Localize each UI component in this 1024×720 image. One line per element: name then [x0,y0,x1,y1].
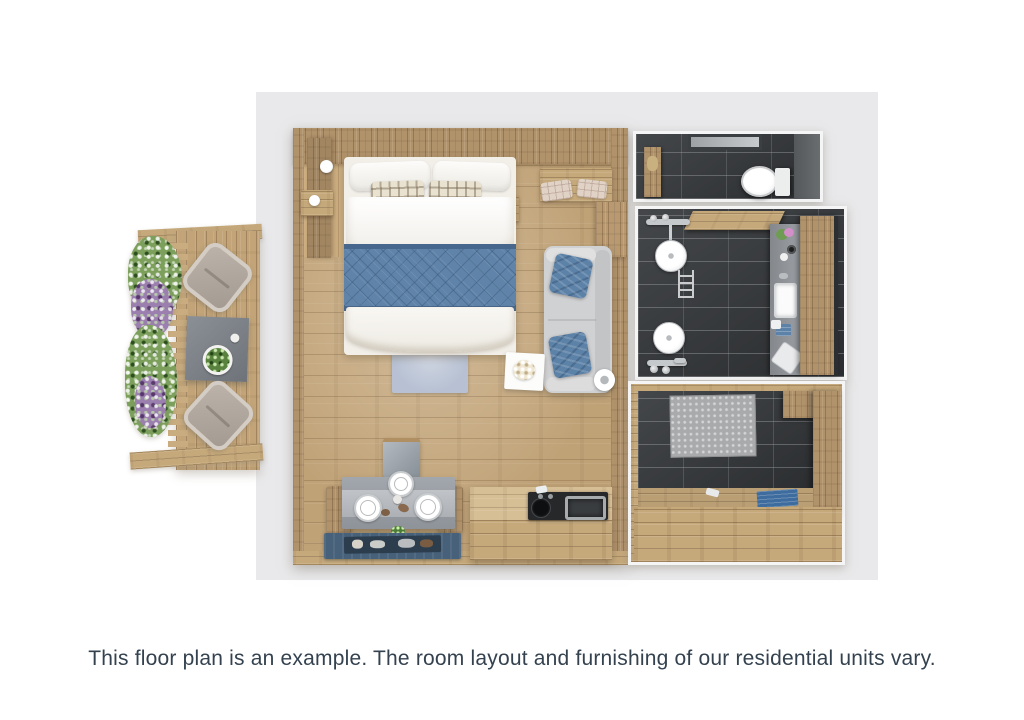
bed-blue-quilt [344,244,516,311]
sauna-interior [631,384,842,562]
balcony-table [185,316,249,382]
vanity-bowl [780,253,788,261]
pendant-lamp [320,160,333,173]
wc-shelf-decor [647,156,658,171]
vanity-counter [770,224,801,375]
bed-foot-sheet [346,307,514,352]
sofa-pillow-bottom [548,331,593,379]
vanity-bowl [787,245,796,254]
tray-item [370,540,385,548]
main-room-wall-right [611,128,628,565]
vanity-flowers [784,228,794,237]
balcony-table-cup [230,333,239,342]
faucet-knob [650,365,658,373]
shower-head-bottom [653,322,685,354]
floor-plan-page: This floor plan is an example. The room … [0,0,1024,720]
nightstand-lamp-left [309,195,320,206]
balcony-chair-seam [206,405,230,427]
wc-wall-zone [794,134,820,199]
kitchen-sink [565,496,606,520]
wc-shelf [644,147,661,197]
tray-item [352,540,363,549]
food-item [381,509,390,516]
floor-lamp [594,369,615,391]
flower-box-purple-lower [135,376,166,428]
side-table [504,352,545,391]
sofa-seat-seam [548,319,596,321]
caption-text: This floor plan is an example. The room … [0,645,1024,672]
sauna-towel-blue [756,489,798,509]
toilet [741,166,778,197]
sauna-main-bench [634,507,842,562]
tray-item [398,539,415,548]
skylight-glass [691,137,759,147]
plate-top [388,471,414,497]
plate-right [414,493,442,521]
soap-dish [779,273,788,279]
toilet-tank [775,168,790,196]
washbasin [774,283,797,318]
double-bed [344,157,516,355]
sofa-armrest-bottom [546,377,596,391]
wc-room [633,131,823,202]
vanity-wood-cabinet [800,216,838,375]
cooktop-burner [531,498,551,518]
sofa-pillow-top [548,252,593,299]
sauna-room [628,381,845,565]
faucet-knob [662,366,670,374]
cooktop-knob [538,494,543,499]
faucet-spout [674,358,686,363]
shower-head-top [655,240,687,272]
skylight-window [688,134,762,150]
wc-floor-tiles [636,134,820,199]
balcony-chair-seam [204,267,230,288]
shower-knob [650,215,657,222]
plate-left [354,494,382,522]
tray-item [420,539,433,547]
washcloth [771,320,781,329]
shower-knob [662,214,669,221]
towel-radiator [678,270,694,298]
cooktop-knob [548,494,553,499]
bathroom-floor-tiles [638,209,844,377]
sauna-side-bench [813,391,842,518]
sauna-corner-bench [783,391,816,418]
entry-bench-cushion-right [576,178,608,199]
serving-tray [344,535,441,554]
cup [393,495,402,504]
sauna-mat [669,394,756,457]
flower-bouquet [513,359,536,380]
bathroom [635,206,847,380]
shower-pipe [669,225,672,241]
